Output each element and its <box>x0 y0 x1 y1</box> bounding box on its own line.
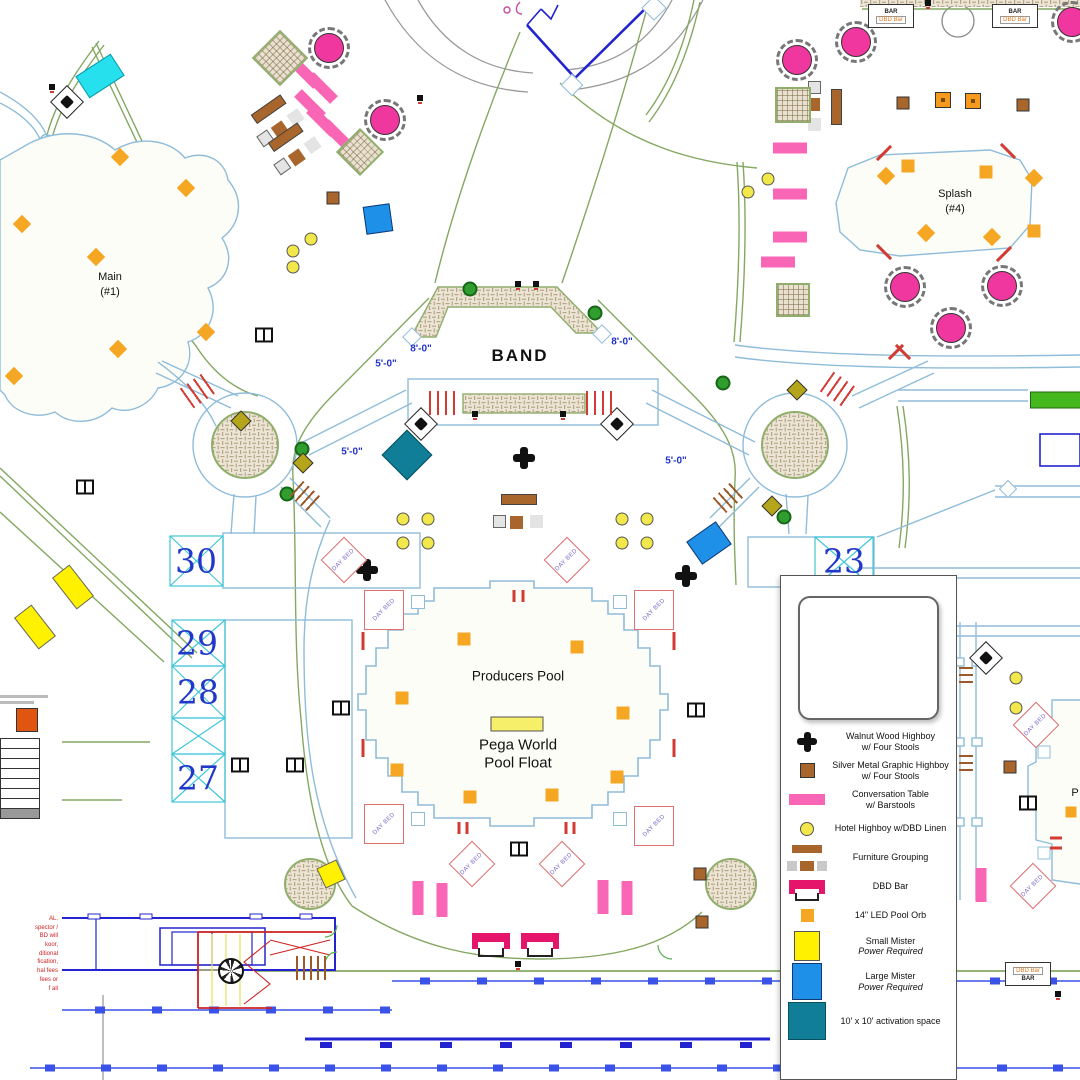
furn-swatch-icon <box>787 845 827 871</box>
plus-swatch-icon <box>797 732 817 752</box>
notes-decor-line <box>0 695 48 698</box>
legend-label: 14" LED Pool Orb <box>829 910 952 920</box>
dbd-swatch-icon <box>789 880 825 894</box>
legend-row: Large MisterPower Required <box>785 963 952 1000</box>
notes-red-fragment: BD will <box>0 932 58 941</box>
teal-swatch-icon <box>788 1002 826 1040</box>
legend-items: Walnut Wood Highboyw/ Four StoolsSilver … <box>781 728 956 1040</box>
plan-label: 30 <box>175 542 217 581</box>
notes-red-fragment: AL. <box>0 915 58 924</box>
plan-label: Producers Pool <box>472 669 564 684</box>
plan-label: 5'-0" <box>341 447 363 458</box>
notes-red-fragment: fication, <box>0 958 58 967</box>
plan-label: 5'-0" <box>375 359 397 370</box>
notes-red-text: AL.spector /BD willkoor,ditionalfication… <box>0 915 62 993</box>
legend-label: Hotel Highboy w/DBD Linen <box>829 823 952 833</box>
yrect-swatch-icon <box>794 931 820 961</box>
plan-label: 8'-0" <box>410 344 432 355</box>
plan-label: Splash <box>938 188 972 200</box>
legend-label: Silver Metal Graphic Highboyw/ Four Stoo… <box>829 760 952 781</box>
legend-row: Furniture Grouping <box>785 844 952 871</box>
site-plan-canvas: BANDProducers PoolPega WorldPool FloatMa… <box>0 0 1080 1080</box>
legend-row: 14" LED Pool Orb <box>785 902 952 929</box>
legend-label: Small MisterPower Required <box>829 936 952 957</box>
notes-table-row <box>1 769 39 779</box>
notes-red-fragment: hal fees <box>0 967 58 976</box>
legend-row: 10' x 10' activation space <box>785 1002 952 1040</box>
legend-row: Small MisterPower Required <box>785 931 952 961</box>
orange-swatch-icon <box>801 909 814 922</box>
legend-panel: Walnut Wood Highboyw/ Four StoolsSilver … <box>780 575 957 1080</box>
notes-orange-swatch <box>16 708 38 732</box>
legend-row: DBD Bar <box>785 873 952 900</box>
legend-label: Walnut Wood Highboyw/ Four Stools <box>829 731 952 752</box>
legend-label: DBD Bar <box>829 881 952 891</box>
legend-row: Hotel Highboy w/DBD Linen <box>785 815 952 842</box>
plan-label: 27 <box>177 759 219 798</box>
plan-label: Pool Float <box>484 755 552 772</box>
brect-swatch-icon <box>792 963 822 1000</box>
notes-table-row <box>1 759 39 769</box>
plan-label: 8'-0" <box>611 337 633 348</box>
plan-label: 29 <box>176 624 218 663</box>
pink-swatch-icon <box>789 794 825 805</box>
legend-label: Furniture Grouping <box>829 852 952 862</box>
plan-label: Main <box>98 271 122 283</box>
plan-label: BAND <box>491 346 548 366</box>
notes-red-fragment: koor, <box>0 941 58 950</box>
legend-label: Conversation Tablew/ Barstools <box>829 789 952 810</box>
notes-decor-line <box>0 701 34 704</box>
legend-row: Silver Metal Graphic Highboyw/ Four Stoo… <box>785 757 952 784</box>
plan-label: (#1) <box>100 286 120 298</box>
brown-swatch-icon <box>800 763 815 778</box>
notes-table <box>0 738 40 819</box>
plan-label: 5'-0" <box>665 456 687 467</box>
notes-table-row <box>1 749 39 759</box>
notes-table-row <box>1 789 39 799</box>
legend-row: Walnut Wood Highboyw/ Four Stools <box>785 728 952 755</box>
notes-table-row <box>1 779 39 789</box>
legend-photo-box <box>798 596 939 720</box>
notes-red-fragment: f all <box>0 985 58 994</box>
notes-table-row <box>1 739 39 749</box>
plan-label: P <box>1071 787 1078 799</box>
ycirc-swatch-icon <box>800 822 814 836</box>
legend-row: Conversation Tablew/ Barstools <box>785 786 952 813</box>
notes-table-row <box>1 809 39 819</box>
notes-panel: AL.spector /BD willkoor,ditionalfication… <box>0 692 62 1037</box>
legend-label: Large MisterPower Required <box>829 971 952 992</box>
notes-red-fragment: fees or <box>0 976 58 985</box>
notes-red-fragment: spector / <box>0 924 58 933</box>
notes-table-row <box>1 799 39 809</box>
notes-red-fragment: ditional <box>0 950 58 959</box>
legend-label: 10' x 10' activation space <box>829 1016 952 1026</box>
plan-label: 28 <box>177 673 219 712</box>
plan-label: Pega World <box>479 737 557 754</box>
plan-label: (#4) <box>945 203 965 215</box>
